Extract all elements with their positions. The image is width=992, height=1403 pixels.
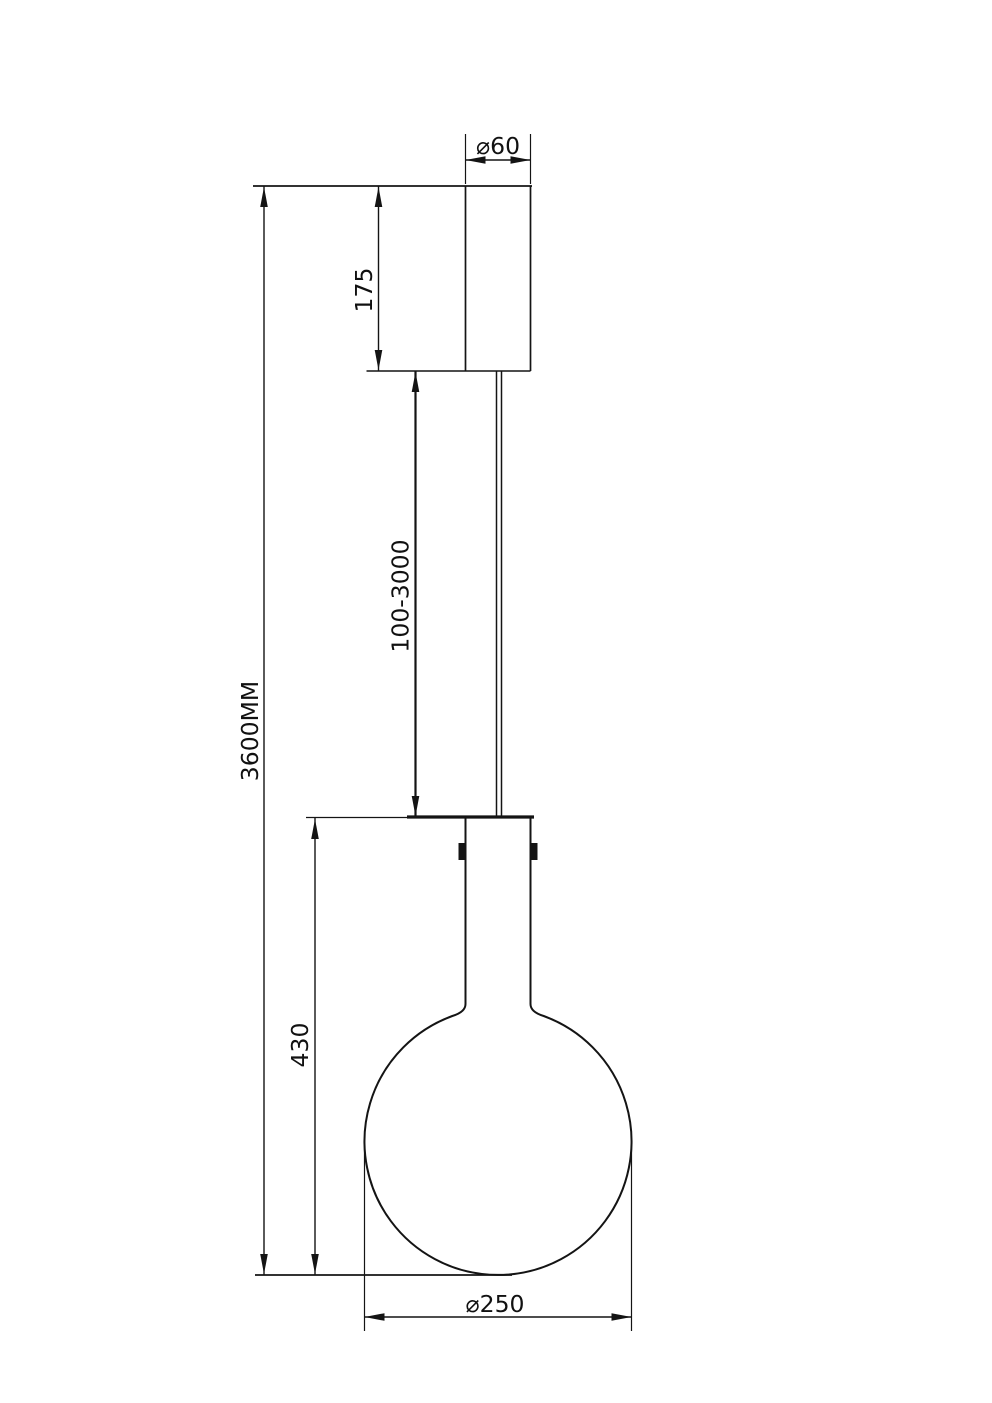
arrowhead-down-icon	[311, 1254, 319, 1274]
glass-globe-outline	[365, 817, 632, 1275]
dim-total-height-label: 3600MM	[236, 681, 264, 781]
dim-total-height: 3600MM	[236, 186, 268, 1275]
arrowhead-left-icon	[365, 1313, 385, 1321]
dim-canopy-diameter-label: ⌀60	[476, 132, 520, 160]
arrowhead-down-icon	[375, 350, 383, 370]
holder-right-clip	[531, 843, 538, 860]
pendant-lamp-dimension-drawing: ⌀60 175 100-3000 3600MM 430	[0, 0, 992, 1403]
dim-canopy-diameter: ⌀60	[466, 132, 531, 184]
arrowhead-up-icon	[375, 187, 383, 207]
dim-suspension-length: 100-3000	[387, 371, 420, 817]
dim-shade-height-label: 430	[286, 1023, 314, 1068]
arrowhead-right-icon	[612, 1313, 632, 1321]
dim-suspension-length-label: 100-3000	[387, 539, 415, 652]
dim-canopy-height-label: 175	[350, 268, 378, 313]
arrowhead-up-icon	[260, 187, 268, 207]
dim-canopy-height: 175	[350, 186, 382, 371]
holder-left-clip	[459, 843, 466, 860]
dim-shade-diameter-label: ⌀250	[465, 1290, 524, 1318]
arrowhead-up-icon	[412, 372, 420, 392]
lamp-outline	[253, 186, 632, 1275]
technical-drawing-canvas: ⌀60 175 100-3000 3600MM 430	[0, 0, 992, 1403]
dim-shade-height: 430	[286, 818, 319, 1275]
arrowhead-down-icon	[260, 1254, 268, 1274]
arrowhead-up-icon	[311, 819, 319, 839]
arrowhead-down-icon	[412, 796, 420, 816]
